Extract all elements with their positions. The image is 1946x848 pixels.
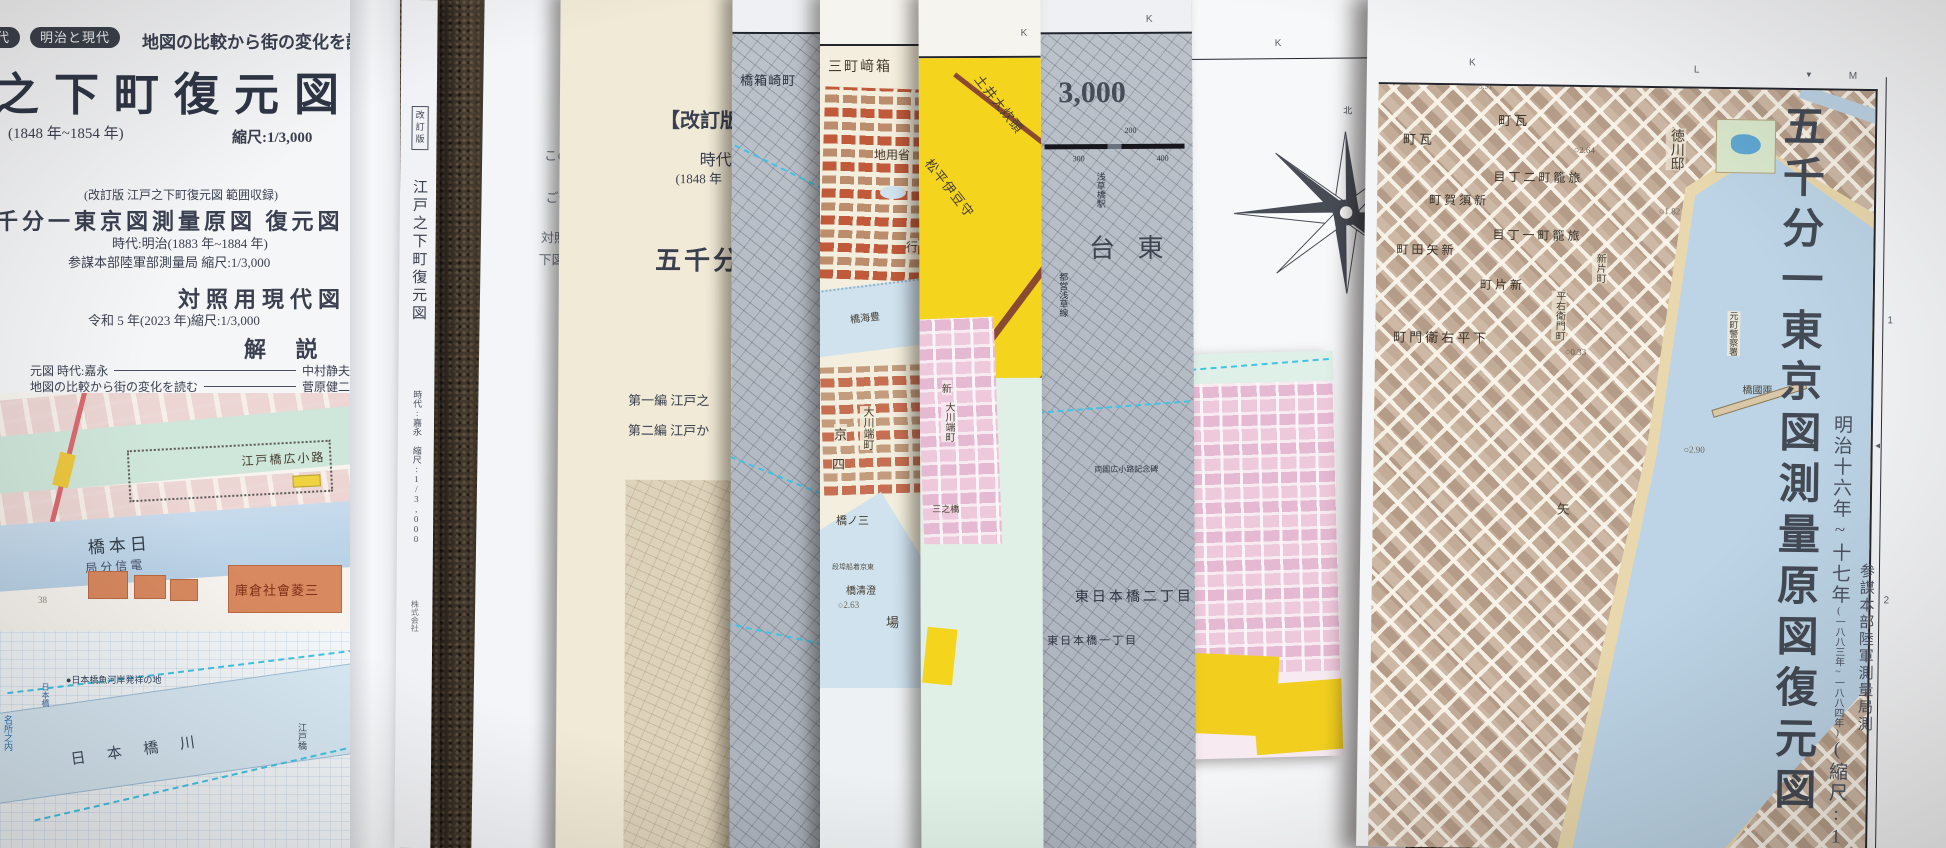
label-elev-182: ○1.82 — [1659, 206, 1680, 216]
cover-era: (1848 年~1854 年) — [8, 122, 124, 143]
pink-sheet-yellow-block — [1252, 678, 1344, 756]
label-shin: 新 — [942, 380, 952, 395]
leader-line — [204, 386, 296, 387]
label-doi-oi-no-kami: 土井大炊頭 — [971, 70, 1029, 137]
label-taito: 台 東 — [1089, 228, 1172, 265]
cover-title: 之下町復元図 — [0, 58, 354, 123]
credit-1-name: 中村静夫 — [302, 362, 350, 379]
map-orange-block — [88, 571, 128, 599]
label-nihonbashi-river: 日 本 橋 川 — [69, 730, 205, 769]
edo-map-sheet: K 土井大炊頭 松平伊豆守 新 大川端町 三之橋 — [918, 0, 1043, 848]
cover-meiji-map-title: 千分一東京図測量原図 復元図 — [0, 204, 344, 236]
label-shin-yadacho-rtl: 町田矢新 — [1396, 240, 1456, 258]
badge-meiji-to-gendai: 明治と現代 — [30, 27, 120, 48]
cream-line-years: (1848 年 — [675, 168, 722, 187]
tracing1-dashed-line — [729, 452, 828, 511]
tracing2-scale-bar — [1045, 144, 1185, 150]
label-nihonbashi-vertical: 日本橋 — [40, 683, 51, 707]
meiji-ruler-arrow: ◄ — [1874, 441, 1882, 450]
slipcase-spine: 改訂版 江戸之下町復元図 時代:嘉永 縮尺:1/3,000 株式会社 — [394, 0, 437, 848]
cover-scale: 縮尺:1/3,000 — [232, 126, 312, 147]
cover-modern-era: 令和 5 年(2023 年)縮尺:1/3,000 — [88, 310, 260, 329]
label-higashi-nihonbashi-2: 東日本橋二丁目 — [1075, 586, 1194, 607]
label-200: 200 — [1124, 126, 1136, 135]
cover-meiji-era: 時代:明治(1883 年~1884 年) — [112, 233, 268, 252]
label-hatagocho-2-rtl: 目丁二町籠旅 — [1493, 168, 1583, 186]
label-yon: 四 — [832, 454, 845, 473]
meiji-margin-ruler — [1875, 77, 1887, 848]
label-elevation-38: 38 — [38, 595, 47, 605]
label-scale-3000: 3,000 — [1058, 76, 1126, 110]
cover-sample-map: 江戸橋広小路 橋本日 局分信電 庫倉社會菱三 38 日 本 橋 川 ●日 — [0, 393, 352, 848]
tracing2-dashed-line — [1038, 400, 1190, 413]
compass-grid-letter-k: K — [1275, 38, 1282, 49]
badge-gendai-partial: 代 — [0, 27, 20, 48]
photo-of-map-set: 代 明治と現代 地図の比較から街の変化を読む 之下町復元図 (1848 年~18… — [0, 0, 1946, 848]
label-asakusabashi-station: 浅草橋駅 — [1095, 172, 1108, 208]
label-ryogoku-monument: 両国広小路記念碑 — [1094, 464, 1158, 475]
meiji-tokugawa-garden — [1715, 119, 1776, 174]
cover-credit-1: 元図 時代:嘉永 中村静夫 — [30, 362, 350, 379]
label-300: 300 — [1073, 154, 1085, 163]
label-hashinosan: 橋ノ三 — [836, 512, 869, 528]
label-400: 400 — [1157, 154, 1169, 163]
label-toyomi-bashi-rtl: 橋海豊 — [849, 308, 881, 327]
label-heiemoncho-vertical: 平右衛門町 — [1551, 291, 1567, 341]
edo-top-margin: K — [918, 0, 1040, 58]
modern-bottom-pale — [820, 688, 924, 848]
meiji-ruler-number-1: 1 — [1887, 315, 1893, 326]
label-kyo: 京 — [834, 424, 847, 443]
modern-water-band: 橋海豊 — [820, 276, 924, 359]
spine-edition-box: 改訂版 — [411, 106, 428, 150]
cream-line-era: 時代 — [700, 146, 732, 170]
label-wharf-rtl: 段埠船着京東 — [832, 562, 874, 572]
cream-line-edition: 【改訂版 — [660, 104, 740, 133]
meiji-map-sheet: K L ▼ M 町賀須 3.91 町瓦 町瓦 徳川邸 ○2.64 ○1.82 目… — [1356, 0, 1946, 848]
map-hirokoji-outline: 江戸橋広小路 — [127, 440, 333, 503]
meiji-subtitle-era: 明治十六年~十七年 — [1828, 415, 1852, 606]
label-shinkatacho-rtl: 町片新 — [1480, 276, 1525, 294]
label-hakozaki-cho: 橋箱崎町 — [740, 70, 796, 89]
label-tokugawa-tei: 徳川邸 — [1666, 128, 1687, 170]
meiji-ruler-number-2: 2 — [1883, 595, 1889, 606]
spine-subtitle: 時代:嘉永 縮尺:1/3,000 — [410, 390, 424, 544]
meiji-grid-letter-m: M — [1849, 71, 1857, 82]
meiji-grid-letter-l: L — [1694, 65, 1700, 76]
label-toei-asakusa-line: 都営浅草線 — [1057, 272, 1070, 317]
cover-note: (改訂版 江戸之下町復元図 範囲収録) — [84, 186, 278, 203]
meiji-sheet-title-vertical: 五千分一東京図測量原図復元図 — [1760, 104, 1831, 819]
spine-title: 江戸之下町復元図 — [410, 179, 427, 323]
cover-kaisetsu-heading: 解 説 — [244, 332, 330, 364]
spine-text: 改訂版 江戸之下町復元図 — [408, 106, 431, 323]
label-ba: 場 — [886, 612, 899, 631]
modern-pond — [880, 186, 906, 199]
label-okawabata-cho-vertical: 大川端町 — [860, 406, 876, 450]
label-shimo-heiemoncho-rtl: 町門衛右平下 — [1393, 326, 1489, 346]
label-edobashi-hirokoji: 江戸橋広小路 — [241, 448, 326, 469]
meiji-grid-letter-k: K — [1469, 57, 1476, 68]
edo-water-lower — [920, 544, 1043, 848]
edo-grid-letter-k: K — [1021, 28, 1028, 39]
cover-meiji-bureau: 参謀本部陸軍部測量局 縮尺:1/3,000 — [68, 252, 270, 271]
label-kawaracho-rtl-a: 町瓦 — [1403, 129, 1435, 148]
label-mitsubishi-warehouse-rtl: 庫倉社會菱三 — [235, 580, 319, 599]
map-orange-block — [134, 575, 166, 599]
label-shin-sugacho-rtl: 町賀須新 — [1429, 191, 1489, 209]
label-sumikiyo-bashi-rtl: 橋清澄 — [846, 582, 876, 597]
label-motomachi-police: 元町警察署 — [1727, 311, 1741, 356]
meiji-garden-pond — [1731, 134, 1761, 154]
credit-1-label: 元図 時代:嘉永 — [30, 362, 108, 379]
label-ya: 矢 — [1557, 499, 1570, 518]
tracing-overlay-sheet-2: K 3,000 200 300 400 浅草橋駅 台 東 都営浅草線 両国広小路… — [1032, 0, 1197, 848]
label-shinkatacho-vertical: 新片町 — [1592, 253, 1607, 283]
meiji-sheet-bureau-vertical: 参謀本部陸軍測量局測 — [1854, 563, 1877, 733]
cream-line-part1: 第一編 江戸之 — [628, 390, 709, 409]
label-north: 北 — [1343, 103, 1352, 116]
modern-map-sheet: 三町﨑箱 地用省 行 3.11 橋海豊 京 四 大川端町 橋ノ三 段埠船着京東 … — [820, 0, 924, 848]
map-mitsubishi-warehouse: 庫倉社會菱三 — [228, 565, 342, 613]
meiji-subtitle-scale: (縮尺:1/3,00 — [1823, 738, 1847, 848]
label-meisho-fragment: 名所之内 — [2, 715, 15, 751]
label-elev-264: ○2.64 — [1574, 145, 1595, 155]
map-orange-block — [170, 579, 198, 601]
label-elev-033: ○0.33 — [1565, 347, 1586, 357]
label-nihonbashi-rtl: 橋本日 — [87, 529, 152, 558]
label-kurasho-yochi-rtl: 地用省 — [874, 146, 910, 163]
spine-publisher: 株式会社 — [409, 600, 420, 632]
tracing1-dashed-line — [729, 140, 828, 208]
label-gyo: 行 — [906, 238, 918, 255]
cover-tagline: 地図の比較から街の変化を読む — [142, 28, 380, 53]
cream-line-gosenbun: 五千分 — [655, 240, 742, 278]
label-elev-391: 3.91 — [1479, 82, 1493, 91]
tracing-overlay-sheet-1: 橋箱崎町 — [729, 0, 828, 848]
tracing2-grid-letter-k: K — [1146, 14, 1153, 25]
modern-map-strip: 日 本 橋 川 ●日本橋魚河岸発祥の地 名所之内 日本橋 江戸橋 — [0, 631, 352, 848]
label-elev-263: ○2.63 — [838, 600, 859, 610]
label-hatagocho-1-rtl: 目丁一町籠旅 — [1492, 226, 1582, 244]
label-kawaracho-rtl-b: 町瓦 — [1498, 110, 1530, 129]
label-sannohashi: 三之橋 — [932, 502, 959, 515]
label-uogashi-monument: ●日本橋魚河岸発祥の地 — [66, 673, 161, 686]
label-elev-290: ○2.90 — [1684, 444, 1705, 454]
slipcase-edge — [350, 0, 400, 848]
tracing2-top-margin — [1032, 0, 1192, 34]
modern-top-margin — [820, 0, 924, 46]
label-okawabata-vertical: 大川端町 — [941, 402, 956, 442]
label-higashi-nihonbashi-1: 東日本橋一丁目 — [1047, 632, 1138, 648]
label-edobashi-vertical: 江戸橋 — [296, 723, 309, 750]
edo-yellow-fragment — [922, 627, 958, 686]
label-hakozakicho-3-rtl: 三町﨑箱 — [828, 56, 892, 76]
label-matsudaira-izu-no-kami: 松平伊豆守 — [921, 154, 979, 221]
tracing1-top-margin — [732, 0, 828, 34]
leader-line — [114, 370, 296, 371]
cream-line-part2: 第二編 江戸か — [628, 420, 709, 439]
meiji-subtitle-years: (一八八三年~一八八四年) — [1832, 606, 1845, 739]
edo-pink-blocks — [918, 317, 1002, 550]
slipcase-cover: 代 明治と現代 地図の比較から街の変化を読む 之下町復元図 (1848 年~18… — [0, 0, 352, 848]
map-small-yellow-block — [292, 474, 321, 487]
tracing1-dashed-line — [729, 622, 828, 651]
meiji-tick-down: ▼ — [1805, 70, 1813, 79]
